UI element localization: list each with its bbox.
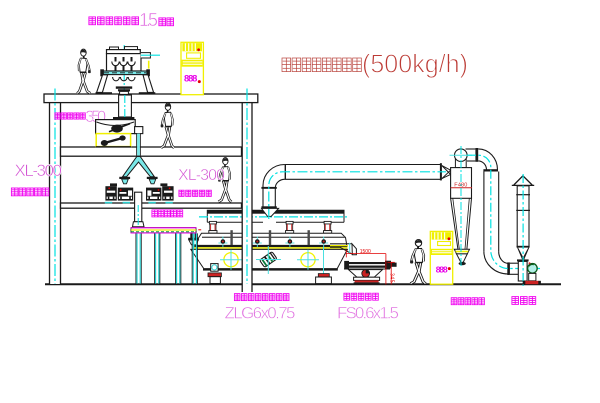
svg-text:888: 888 (436, 265, 448, 275)
svg-text:1500: 1500 (360, 249, 371, 255)
svg-text:(500kg/h): (500kg/h) (362, 49, 468, 79)
svg-text:ZLG6x0.75: ZLG6x0.75 (225, 304, 296, 323)
svg-text:FS0.6x1.5: FS0.6x1.5 (337, 304, 399, 323)
svg-text:1.5: 1.5 (139, 10, 158, 30)
svg-text:888: 888 (184, 72, 197, 83)
svg-text:XL-300: XL-300 (178, 167, 225, 184)
svg-text:345: 345 (389, 273, 395, 283)
svg-text:XL-300: XL-300 (15, 161, 63, 180)
